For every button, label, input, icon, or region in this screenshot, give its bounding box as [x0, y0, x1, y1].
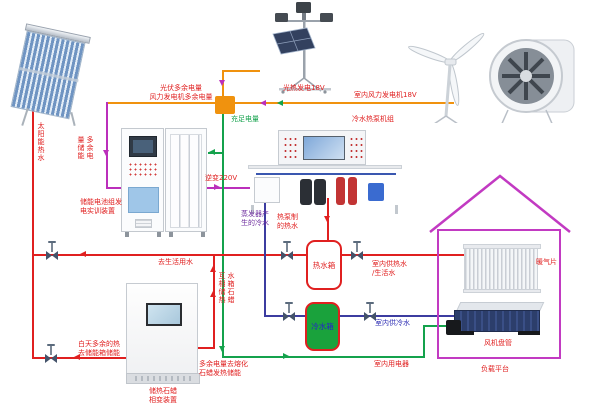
arrow-up-icon — [210, 291, 216, 297]
paraffin-body — [126, 283, 198, 375]
arrow-down-icon — [219, 80, 225, 86]
label-sufficient-power: 充足电量 — [231, 115, 259, 124]
pump-module — [254, 177, 280, 203]
label-indoor-cold: 室内供冷水 — [375, 319, 410, 328]
fancoil-rail — [452, 331, 474, 335]
solar-tracker — [263, 0, 348, 95]
valve-icon — [44, 343, 58, 363]
wire-fancoil-vertical — [423, 326, 425, 358]
hot-tank-label: 热水箱 — [313, 260, 336, 271]
label-tank-paraffin-mutual: 水箱石蜡互相储热 — [217, 272, 235, 308]
wire-store-vertical — [106, 102, 108, 189]
label-inverter: 逆变220V — [205, 174, 237, 183]
cabinet-foot — [125, 232, 129, 237]
cabinet-foot — [201, 232, 205, 237]
blue-module — [128, 187, 159, 213]
arrow-up-icon — [210, 266, 216, 272]
solar-collector — [6, 20, 106, 126]
label-battery-cabinet: 储能电池组发 电实训装置 — [80, 198, 122, 215]
system-diagram: 热水箱 冷水箱 光伏多余电量 风力发电机多余电量 光热发电18V 室内风力发电机… — [0, 0, 600, 419]
label-wind-gen: 室内风力发电机18V — [354, 91, 417, 100]
arrow-left-icon — [209, 149, 215, 155]
label-melt-paraffin: 多余电量去熔化 石蜡发热储能 — [199, 360, 248, 377]
valve-icon — [45, 240, 59, 260]
vent-grille — [135, 219, 152, 228]
bench-pipe — [256, 173, 396, 175]
label-excess-store: 多余电量储能 — [76, 136, 94, 164]
wire-main-vertical — [222, 113, 224, 358]
label-indoor-loads: 室内用电器 — [374, 360, 409, 369]
arrow-down-icon — [219, 346, 225, 352]
panel-screen — [303, 136, 345, 160]
label-paraffin-unit: 储热石蜡 相变装置 — [143, 387, 183, 404]
cabinet-foot — [169, 232, 173, 237]
hot-water-tank: 热水箱 — [306, 240, 342, 290]
arrow-left-icon — [277, 100, 283, 106]
radiator-footer — [463, 289, 541, 293]
red-tank — [336, 177, 345, 205]
fancoil-front — [454, 310, 540, 332]
label-pv-excess: 光伏多余电量 风力发电机多余电量 — [146, 84, 216, 101]
panel-buttons — [349, 136, 364, 161]
cold-water-tank: 冷水箱 — [305, 302, 340, 351]
compressor — [314, 179, 326, 205]
arrow-right-icon — [214, 184, 220, 190]
fan-coil-unit — [450, 298, 544, 340]
radiator-header — [463, 244, 541, 249]
arrow-right-icon — [283, 353, 289, 359]
arrow-left-icon — [80, 251, 86, 257]
cabinet-foot — [157, 232, 161, 237]
collector-midbar — [19, 67, 78, 82]
label-daytime-excess: 白天多余的热 去储能箱储能 — [78, 340, 120, 357]
bench-leg — [395, 205, 398, 214]
red-tank — [348, 177, 357, 205]
wire-tracker-horizontal — [222, 70, 260, 72]
valve-icon — [280, 240, 294, 260]
wire-inverter — [206, 187, 250, 189]
label-hp-hot: 热泵制 的热水 — [277, 213, 298, 230]
paraffin-screen — [146, 303, 182, 326]
junction-box — [215, 96, 235, 114]
fancoil-rail — [518, 331, 540, 335]
panel-buttons — [283, 136, 299, 161]
blue-pump — [368, 183, 384, 201]
valve-icon — [350, 240, 364, 260]
paraffin-base — [126, 373, 200, 384]
indicator-lights — [128, 162, 159, 178]
label-solar-hot-water: 太阳能热水 — [36, 122, 45, 168]
battery-cabinet-unit — [119, 126, 209, 238]
heat-pump-unit — [248, 127, 402, 215]
label-load-platform: 负载平台 — [481, 365, 509, 374]
paraffin-storage-unit — [126, 283, 200, 385]
label-to-domestic: 去生活用水 — [158, 258, 193, 267]
wire-bus-left — [107, 102, 217, 104]
cabinet-screen — [129, 136, 157, 157]
cold-tank-label: 冷水箱 — [311, 321, 334, 332]
label-evap-cold: 蒸发器产 生的冷水 — [241, 210, 269, 227]
collector-leg — [21, 108, 28, 126]
wire-loads-horizontal — [222, 356, 425, 358]
arrow-left-icon — [260, 100, 266, 106]
label-fan-coil: 风机盘管 — [484, 339, 512, 348]
collector-leg — [70, 112, 75, 126]
label-radiator: 暖气片 — [536, 258, 557, 267]
arrow-down-icon — [324, 216, 330, 222]
label-indoor-hot: 室内供热水 /生活水 — [372, 260, 407, 277]
label-heat-pump-unit: 冷水热泵机组 — [352, 115, 394, 124]
battery-shelves — [170, 134, 202, 228]
house-roof — [425, 172, 573, 234]
compressor — [300, 179, 312, 205]
battery-rack-cabinet — [165, 128, 207, 232]
valve-icon — [282, 301, 296, 321]
control-panel — [278, 130, 366, 165]
arrow-down-icon — [103, 150, 109, 156]
radiator — [464, 245, 538, 292]
valve-icon — [363, 301, 377, 321]
collector-panel — [11, 31, 86, 120]
label-solar-gen: 光热发电18V — [283, 84, 325, 93]
bench-top — [248, 165, 402, 169]
pipe-solar-vertical — [32, 105, 34, 359]
collector-manifold — [25, 23, 91, 44]
control-cabinet — [121, 128, 164, 232]
wind-turbine-and-fan — [408, 18, 588, 123]
